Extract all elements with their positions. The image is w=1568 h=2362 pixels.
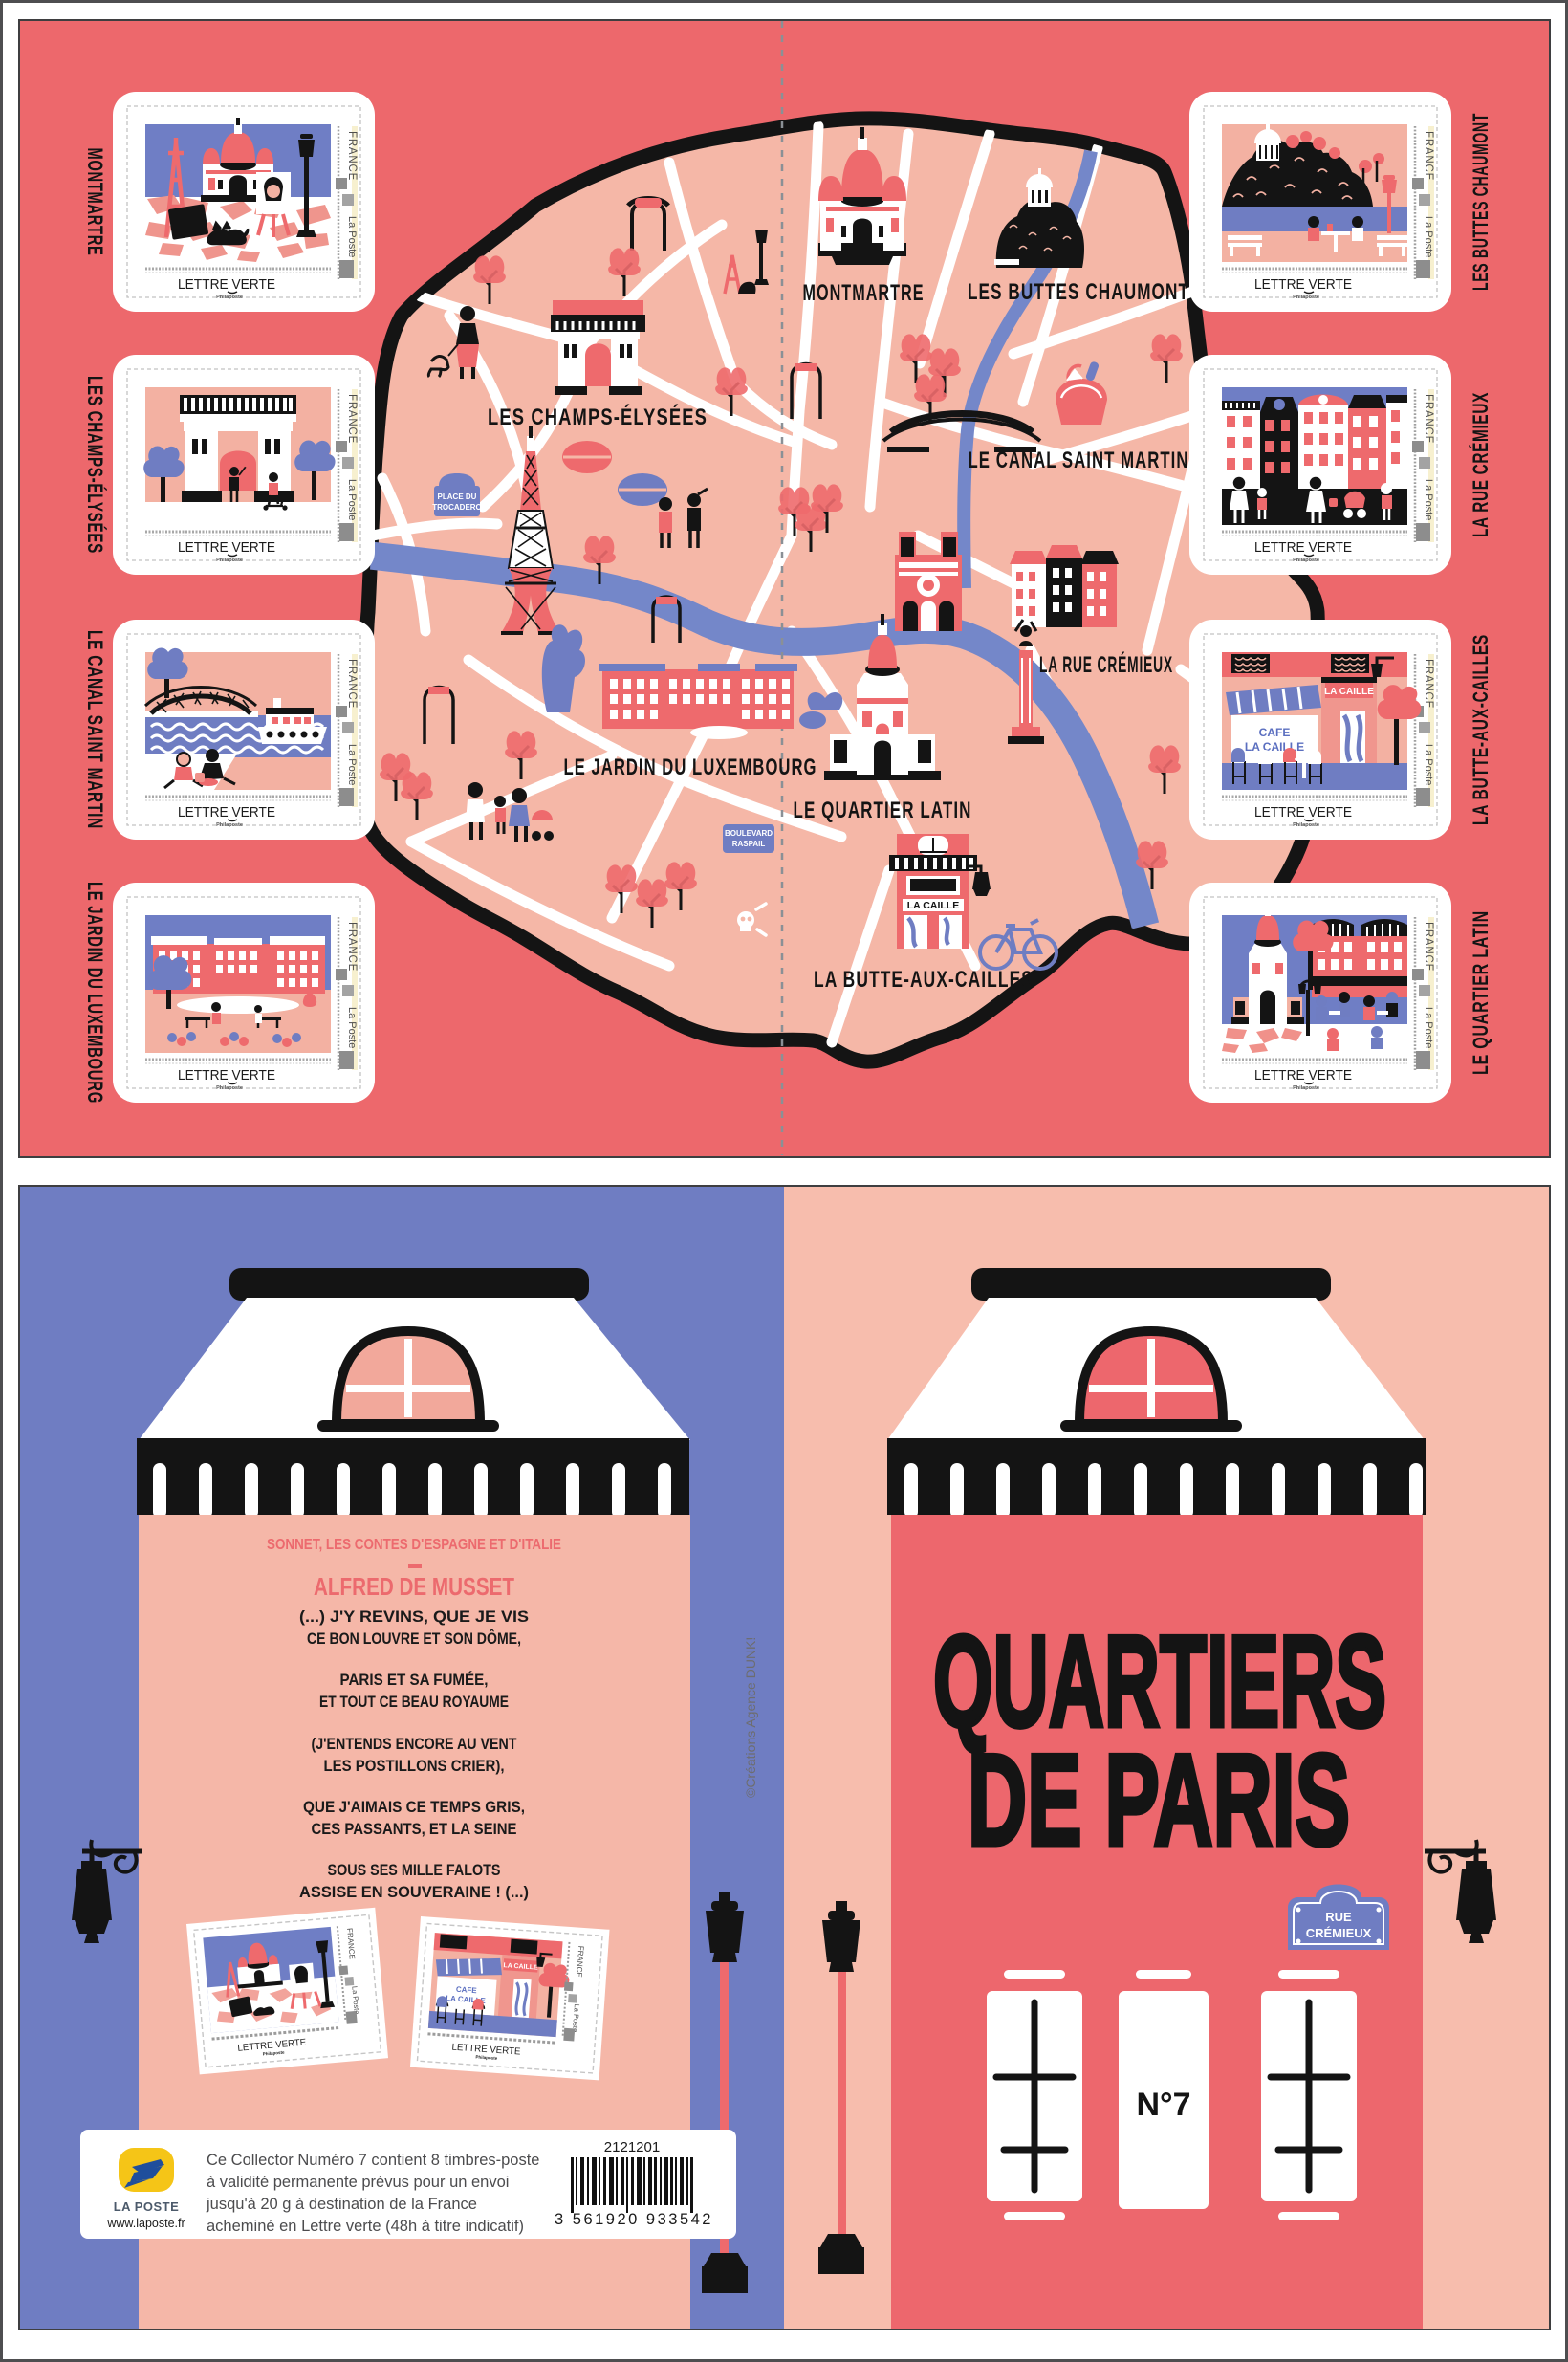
svg-text:LE JARDIN DU LUXEMBOURG: LE JARDIN DU LUXEMBOURG [564, 755, 817, 780]
svg-text:BOULEVARD: BOULEVARD [725, 829, 773, 838]
svg-text:CES PASSANTS, ET LA SEINE: CES PASSANTS, ET LA SEINE [312, 1821, 517, 1838]
svg-text:SONNET, LES CONTES D'ESPAGNE E: SONNET, LES CONTES D'ESPAGNE ET D'ITALIE [267, 1537, 561, 1553]
svg-text:ALFRED DE MUSSET: ALFRED DE MUSSET [314, 1572, 514, 1601]
svg-text:LA BUTTE-AUX-CAILLES: LA BUTTE-AUX-CAILLES [1469, 634, 1492, 825]
svg-text:3 561920 933542: 3 561920 933542 [555, 2211, 713, 2228]
svg-text:LA RUE CRÉMIEUX: LA RUE CRÉMIEUX [1469, 392, 1492, 537]
svg-text:CAFE: CAFE [1259, 726, 1291, 739]
svg-text:LA BUTTE-AUX-CAILLES: LA BUTTE-AUX-CAILLES [814, 967, 1034, 993]
svg-text:MONTMARTRE: MONTMARTRE [803, 280, 925, 306]
svg-text:SOUS SES MILLE FALOTS: SOUS SES MILLE FALOTS [328, 1862, 501, 1879]
svg-text:LES BUTTES CHAUMONT: LES BUTTES CHAUMONT [968, 279, 1189, 305]
svg-text:CRÉMIEUX: CRÉMIEUX [1306, 1926, 1372, 1940]
svg-text:2121201: 2121201 [604, 2139, 660, 2155]
svg-text:LA CAILLE: LA CAILLE [1324, 687, 1374, 697]
svg-text:©Créations Agence DUNK!: ©Créations Agence DUNK! [743, 1637, 758, 1798]
svg-text:ASSISE EN SOUVERAINE ! (...): ASSISE EN SOUVERAINE ! (...) [299, 1884, 529, 1901]
svg-text:LES CHAMPS-ÉLYSÉES: LES CHAMPS-ÉLYSÉES [83, 376, 107, 554]
svg-text:MONTMARTRE: MONTMARTRE [83, 148, 107, 256]
svg-text:LA POSTE: LA POSTE [114, 2199, 180, 2214]
svg-text:LA CAILLE: LA CAILLE [907, 900, 959, 911]
svg-text:(...) J'Y REVINS, QUE JE VIS: (...) J'Y REVINS, QUE JE VIS [299, 1608, 529, 1626]
svg-text:LE QUARTIER LATIN: LE QUARTIER LATIN [794, 798, 972, 823]
svg-text:CE BON LOUVRE ET SON DÔME,: CE BON LOUVRE ET SON DÔME, [307, 1629, 521, 1648]
svg-text:ET TOUT CE BEAU ROYAUME: ET TOUT CE BEAU ROYAUME [319, 1694, 509, 1711]
svg-text:(J'ENTENDS ENCORE AU VENT: (J'ENTENDS ENCORE AU VENT [312, 1736, 517, 1753]
svg-text:LES CHAMPS-ÉLYSÉES: LES CHAMPS-ÉLYSÉES [488, 404, 708, 430]
svg-text:CAFE: CAFE [456, 1985, 478, 1996]
svg-text:LES BUTTES CHAUMONT: LES BUTTES CHAUMONT [1469, 113, 1492, 291]
svg-text:TROCADERO: TROCADERO [432, 503, 482, 512]
svg-text:DE PARIS: DE PARIS [968, 1727, 1350, 1872]
svg-text:RASPAIL: RASPAIL [732, 840, 766, 848]
svg-text:QUE J'AIMAIS CE TEMPS GRIS,: QUE J'AIMAIS CE TEMPS GRIS, [303, 1799, 525, 1816]
svg-text:LE QUARTIER LATIN: LE QUARTIER LATIN [1469, 910, 1492, 1075]
svg-text:www.laposte.fr: www.laposte.fr [106, 2217, 185, 2230]
svg-text:LE JARDIN DU LUXEMBOURG: LE JARDIN DU LUXEMBOURG [83, 882, 107, 1104]
svg-text:RUE: RUE [1325, 1910, 1352, 1924]
svg-text:Ce Collector Numéro 7 contient: Ce Collector Numéro 7 contient 8 timbres… [207, 2152, 539, 2169]
svg-text:jusqu'à 20 g à destination de: jusqu'à 20 g à destination de la France [206, 2196, 477, 2213]
svg-text:PLACE DU: PLACE DU [438, 492, 477, 501]
svg-text:PARIS ET SA FUMÉE,: PARIS ET SA FUMÉE, [340, 1671, 489, 1689]
svg-text:à validité permanente prévus p: à validité permanente prévus pour un env… [207, 2174, 509, 2191]
svg-text:acheminé en Lettre verte (48h: acheminé en Lettre verte (48h à titre in… [207, 2218, 524, 2235]
svg-text:LE CANAL SAINT MARTIN: LE CANAL SAINT MARTIN [969, 448, 1189, 473]
svg-text:N°7: N°7 [1136, 2087, 1190, 2123]
svg-text:LES POSTILLONS CRIER),: LES POSTILLONS CRIER), [324, 1758, 505, 1775]
svg-text:LA RUE CRÉMIEUX: LA RUE CRÉMIEUX [1039, 651, 1173, 678]
svg-text:LE CANAL SAINT MARTIN: LE CANAL SAINT MARTIN [83, 630, 107, 829]
